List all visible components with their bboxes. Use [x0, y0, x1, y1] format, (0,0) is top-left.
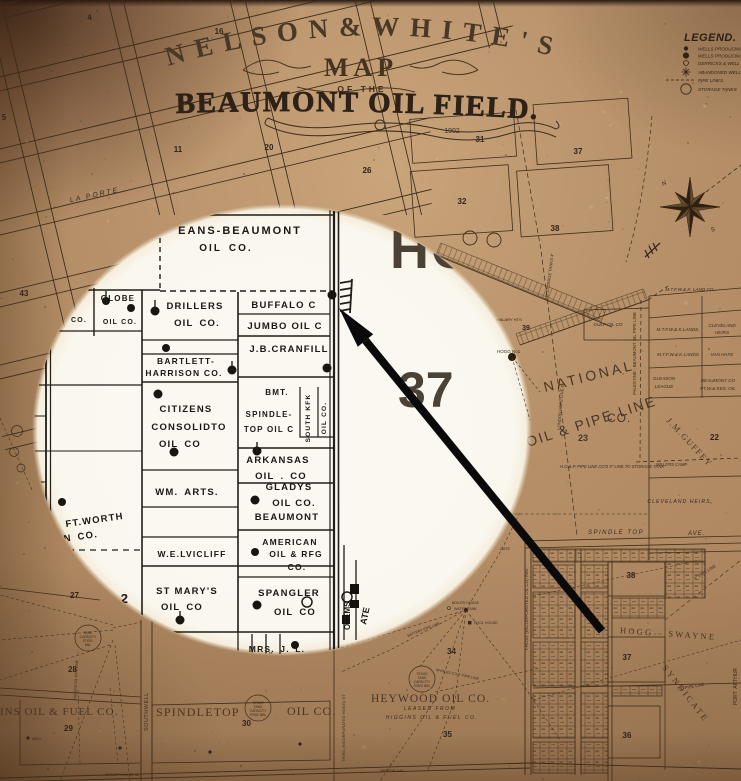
svg-text:HARRISON CO.: HARRISON CO.	[145, 368, 222, 378]
svg-text:VAN HAFE: VAN HAFE	[711, 352, 735, 357]
svg-text:OIL CO.: OIL CO.	[199, 243, 252, 254]
svg-text:11: 11	[174, 145, 183, 154]
svg-text:PORT ARTHUR: PORT ARTHUR	[733, 668, 739, 705]
svg-text:LEAGUE: LEAGUE	[655, 384, 675, 389]
svg-text:22: 22	[710, 433, 719, 442]
svg-text:OIL CO: OIL CO	[159, 439, 201, 450]
svg-text:W.E.LVICLIFF: W.E.LVICLIFF	[157, 549, 226, 559]
svg-text:M.T.F.W.& K.LANDS.: M.T.F.W.& K.LANDS.	[657, 327, 700, 332]
svg-text:OIL CO.: OIL CO.	[174, 318, 220, 329]
svg-text:23: 23	[578, 433, 588, 443]
svg-text:JUMBO OIL C: JUMBO OIL C	[247, 321, 322, 332]
svg-text:OIL CO: OIL CO	[274, 607, 316, 618]
svg-text:HOGG No1: HOGG No1	[497, 349, 521, 354]
svg-text:H.O.& P. PIPE LINE CO'S 5" L: H.O.& P. PIPE LINE CO'S 5" LINE TO STORA…	[560, 464, 664, 469]
svg-text:FT.W.& KES. OIL: FT.W.& KES. OIL	[700, 386, 736, 391]
svg-text:AMERICAN: AMERICAN	[262, 537, 317, 547]
svg-text:SPANGLER: SPANGLER	[258, 588, 320, 599]
svg-text:BEAUMONT: BEAUMONT	[255, 512, 320, 523]
svg-text:J.B.CRANFILL: J.B.CRANFILL	[249, 344, 328, 355]
svg-text:THIRD (INCORPORATED HOGG) ST: THIRD (INCORPORATED HOGG) ST	[341, 694, 346, 762]
svg-text:WM. ARTS.: WM. ARTS.	[155, 487, 219, 498]
svg-text:43: 43	[20, 289, 29, 298]
svg-text:TOP OIL C: TOP OIL C	[244, 425, 294, 434]
svg-text:DRILLERS: DRILLERS	[166, 301, 223, 312]
svg-text:LEGEND.: LEGEND.	[684, 32, 736, 44]
svg-text:AVE.: AVE.	[687, 531, 705, 537]
svg-text:BUFFALO C: BUFFALO C	[251, 300, 316, 311]
svg-text:M.T.F.W.& K. LAND CO.: M.T.F.W.& K. LAND CO.	[665, 287, 714, 292]
svg-text:HEIRS: HEIRS	[715, 330, 730, 335]
svg-text:DERRICKS & WELL: DERRICKS & WELL	[698, 61, 740, 66]
svg-text:EANS-BEAUMONT: EANS-BEAUMONT	[178, 225, 302, 237]
svg-text:CLEVELAND HEIRS: CLEVELAND HEIRS	[647, 499, 710, 505]
svg-text:5: 5	[2, 113, 7, 122]
svg-text:SPINDLE TOP: SPINDLE TOP	[588, 530, 644, 536]
svg-text:CONSOLIDTO: CONSOLIDTO	[151, 422, 226, 433]
svg-text:CITIZENS: CITIZENS	[160, 404, 213, 415]
svg-text:PALESTINE - BEAUMONT OIL PIPE: PALESTINE - BEAUMONT OIL PIPE LINE	[632, 312, 637, 395]
svg-text:GULF OIL CO: GULF OIL CO	[594, 322, 623, 327]
svg-text:OIL CO.: OIL CO.	[321, 402, 328, 434]
svg-text:PIPE LINES.: PIPE LINES.	[698, 78, 724, 83]
svg-text:BARTLETT-: BARTLETT-	[157, 356, 215, 366]
svg-text:26: 26	[363, 166, 372, 175]
svg-text:GLADYS: GLADYS	[266, 482, 313, 493]
svg-text:BMT.: BMT.	[265, 388, 288, 397]
svg-text:38: 38	[551, 224, 560, 233]
svg-text:MAP: MAP	[324, 53, 398, 82]
svg-text:CO.: CO.	[288, 562, 307, 572]
svg-text:OIL CO: OIL CO	[161, 602, 203, 613]
svg-text:OIL CO.: OIL CO.	[103, 319, 137, 326]
svg-text:WELLS PRODUCING: WELLS PRODUCING	[698, 47, 741, 52]
svg-text:MILLERS CAMP: MILLERS CAMP	[656, 462, 687, 467]
svg-text:CO.: CO.	[71, 317, 87, 324]
svg-text:OIL CO.: OIL CO.	[272, 498, 316, 509]
svg-text:SOUTH KFK: SOUTH KFK	[305, 394, 312, 443]
svg-text:1902: 1902	[444, 128, 460, 135]
svg-text:ABANDONED WELL: ABANDONED WELL	[697, 70, 741, 75]
svg-text:M.T.F.W.& K.LANDS: M.T.F.W.& K.LANDS	[657, 352, 700, 357]
svg-text:STORAGE TANKS: STORAGE TANKS	[698, 87, 738, 92]
svg-text:ARKANSAS: ARKANSAS	[246, 455, 309, 466]
svg-text:CLEVELAND: CLEVELAND	[708, 323, 736, 328]
svg-text:WELLS PRODUCING: WELLS PRODUCING	[698, 54, 741, 59]
svg-text:20: 20	[265, 143, 274, 152]
svg-text:37: 37	[574, 147, 583, 156]
svg-text:ST MARY'S: ST MARY'S	[156, 586, 218, 597]
svg-text:BEAUMONT CO: BEAUMONT CO	[701, 378, 736, 383]
svg-text:OIL & RFG: OIL & RFG	[269, 549, 323, 559]
svg-text:CO.: CO.	[607, 411, 631, 425]
svg-text:GLEASON: GLEASON	[653, 376, 676, 381]
svg-text:OIL . CO: OIL . CO	[255, 471, 307, 482]
svg-text:SPINDLE-: SPINDLE-	[246, 410, 293, 419]
svg-text:OTEMS: OTEMS	[343, 601, 352, 630]
svg-text:32: 32	[458, 197, 467, 206]
